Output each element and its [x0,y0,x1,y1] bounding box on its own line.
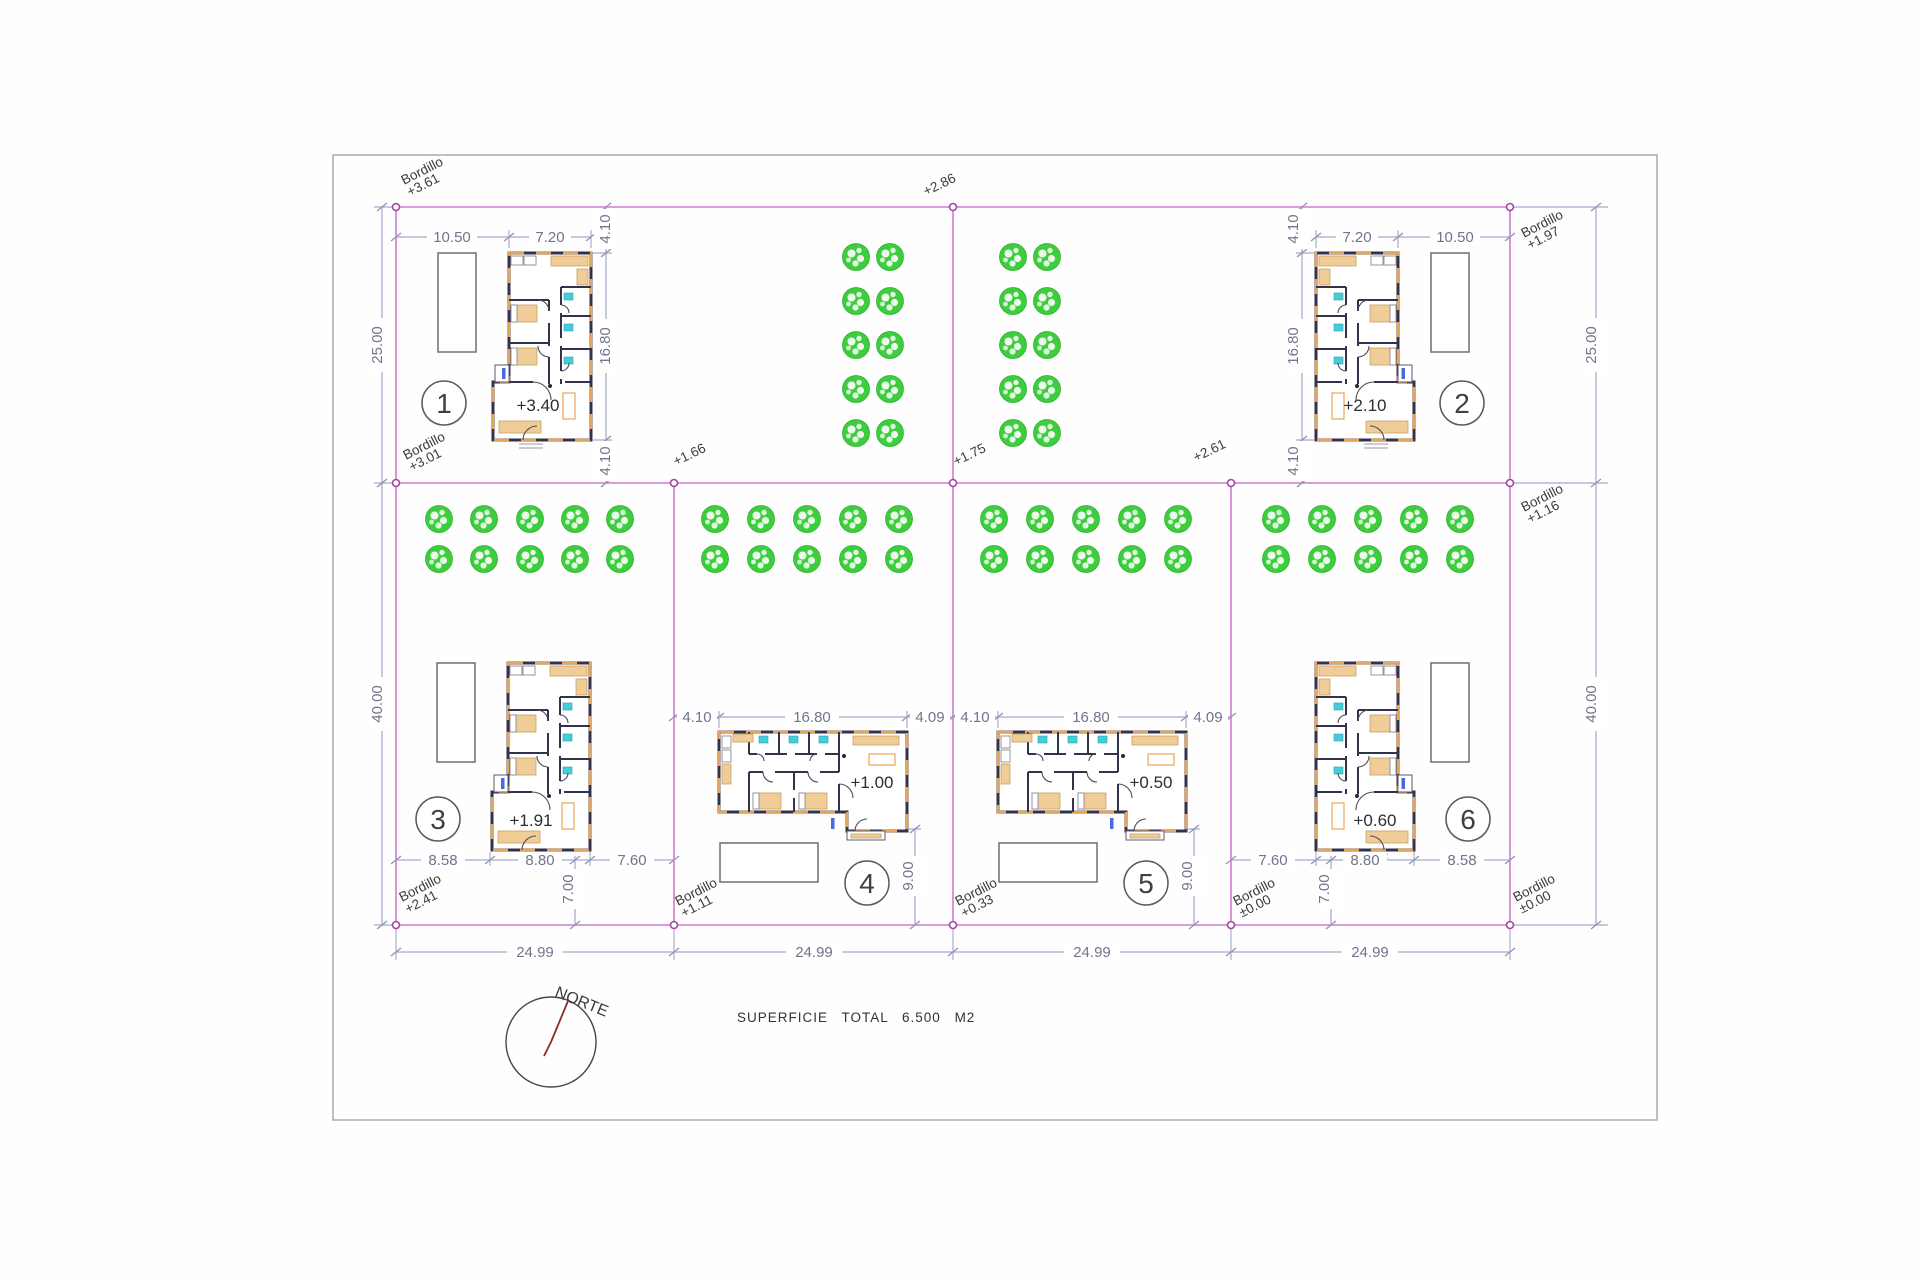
floor-level-2: +2.10 [1343,396,1386,415]
dim-label: 4.10 [1285,446,1302,475]
dim-label: 24.99 [795,944,833,961]
tree-icon [1073,546,1100,573]
floor-level-4: +1.00 [850,773,893,792]
total-area-label: SUPERFICIE TOTAL 6.500 M2 [737,1010,975,1025]
site-plan-drawing: 24.99 24.99 24.99 24.99 25.00 40.00 25.0… [0,0,1920,1280]
tree-icon [886,506,913,533]
tree-icon [426,546,453,573]
dim-label: 16.80 [1072,709,1110,726]
dim-label: 40.00 [369,685,386,723]
dim-label: 4.10 [682,709,711,726]
dim-label: 10.50 [433,229,471,246]
tree-icon [1165,506,1192,533]
plot-number-1: 1 [436,388,452,419]
tree-icon [877,332,904,359]
dim-label: 7.00 [1316,874,1333,903]
tree-icon [1401,506,1428,533]
compass-needle-icon [544,1001,568,1056]
floor-level-5: +0.50 [1129,773,1172,792]
tree-icon [1027,506,1054,533]
dim-label: 4.10 [1285,214,1302,243]
spot-elevation: +2.86 [921,170,958,198]
dim-label: 24.99 [1073,944,1111,961]
tree-icon [1000,288,1027,315]
dim-label: 7.00 [560,874,577,903]
tree-icon [702,506,729,533]
spot-elevation: +2.61 [1191,436,1228,464]
plot-number-6: 6 [1460,804,1476,835]
tree-icon [1034,244,1061,271]
tree-icon [471,506,498,533]
tree-icon [877,244,904,271]
floor-level-6: +0.60 [1353,811,1396,830]
dim-label: 7.60 [1258,852,1287,869]
tree-icon [471,546,498,573]
dim-label: 8.80 [1350,852,1379,869]
blueprint-canvas: 24.99 24.99 24.99 24.99 25.00 40.00 25.0… [0,0,1920,1280]
dim-label: 40.00 [1583,685,1600,723]
tree-icon [607,506,634,533]
dim-label: 8.80 [525,852,554,869]
dim-label: 8.58 [1447,852,1476,869]
dim-label: 4.10 [960,709,989,726]
tree-icon [843,244,870,271]
tree-icon [981,546,1008,573]
tree-icon [748,546,775,573]
tree-icon [1027,546,1054,573]
dim-label: 7.20 [535,229,564,246]
garage-plot-6 [1431,663,1469,762]
tree-icon [1000,244,1027,271]
tree-icon [1263,506,1290,533]
dim-label: 7.20 [1342,229,1371,246]
tree-icon [1447,506,1474,533]
dim-label: 4.09 [915,709,944,726]
tree-icon [886,546,913,573]
spot-elevation: +1.66 [671,440,708,468]
plot-number-2: 2 [1454,388,1470,419]
tree-icon [1034,288,1061,315]
dim-label: 24.99 [1351,944,1389,961]
tree-icon [1000,332,1027,359]
garage-plot-4 [720,843,818,882]
tree-icon [1119,506,1146,533]
tree-icon [1355,546,1382,573]
plot-number-3: 3 [430,804,446,835]
tree-icon [1119,546,1146,573]
tree-icon [1034,420,1061,447]
floor-level-1: +3.40 [516,396,559,415]
tree-icon [877,420,904,447]
dim-label: 4.09 [1193,709,1222,726]
tree-icon [843,420,870,447]
house-plot-2 [1316,253,1414,448]
tree-icon [748,506,775,533]
dim-label: 16.80 [793,709,831,726]
dim-label: 7.60 [617,852,646,869]
tree-icon [843,288,870,315]
tree-icon [840,506,867,533]
tree-icon [843,332,870,359]
garage-plot-1 [438,253,476,352]
dim-label: 16.80 [597,327,614,365]
tree-icon [843,376,870,403]
tree-icon [1034,332,1061,359]
tree-icon [1165,546,1192,573]
tree-icon [877,376,904,403]
spot-elevation: +1.75 [951,440,988,468]
tree-icon [981,506,1008,533]
dim-label: 9.00 [1179,861,1196,890]
tree-icon [702,546,729,573]
tree-icon [1263,546,1290,573]
tree-icon [562,546,589,573]
tree-icon [1034,376,1061,403]
tree-icon [840,546,867,573]
tree-icon [1309,546,1336,573]
dim-label: 9.00 [900,861,917,890]
tree-icon [1000,420,1027,447]
dim-label: 10.50 [1436,229,1474,246]
tree-icon [794,546,821,573]
tree-icon [517,546,544,573]
garage-plot-2 [1431,253,1469,352]
floor-level-3: +1.91 [509,811,552,830]
dim-label: 25.00 [369,326,386,364]
tree-icon [562,506,589,533]
garage-plot-3 [437,663,475,762]
north-compass: NORTE [506,984,611,1087]
tree-icon [1000,376,1027,403]
dim-label: 4.10 [597,446,614,475]
dim-label: 8.58 [428,852,457,869]
tree-icon [607,546,634,573]
garage-plot-5 [999,843,1097,882]
tree-icon [1401,546,1428,573]
dim-label: 25.00 [1583,326,1600,364]
tree-icon [794,506,821,533]
tree-icon [1309,506,1336,533]
dim-label: 4.10 [597,214,614,243]
dim-label: 16.80 [1285,327,1302,365]
dim-label: 24.99 [516,944,554,961]
tree-icon [877,288,904,315]
tree-icon [1073,506,1100,533]
plot-number-4: 4 [859,868,875,899]
tree-icon [426,506,453,533]
plot-number-5: 5 [1138,868,1154,899]
tree-icon [1355,506,1382,533]
house-plot-1 [493,253,591,448]
tree-icon [517,506,544,533]
tree-icon [1447,546,1474,573]
